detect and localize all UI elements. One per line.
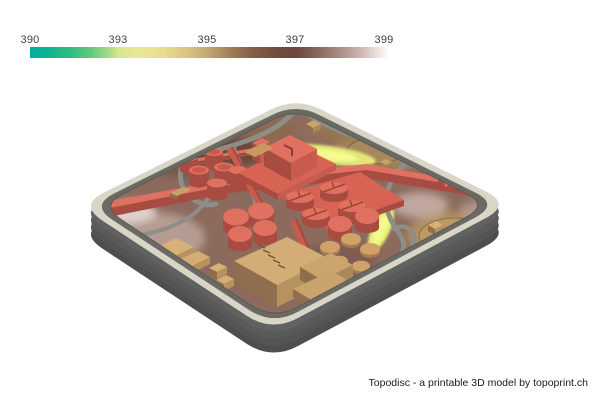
terrain (82, 111, 500, 320)
model-render (0, 0, 600, 400)
credit-text: Topodisc - a printable 3D model by topop… (369, 377, 588, 389)
